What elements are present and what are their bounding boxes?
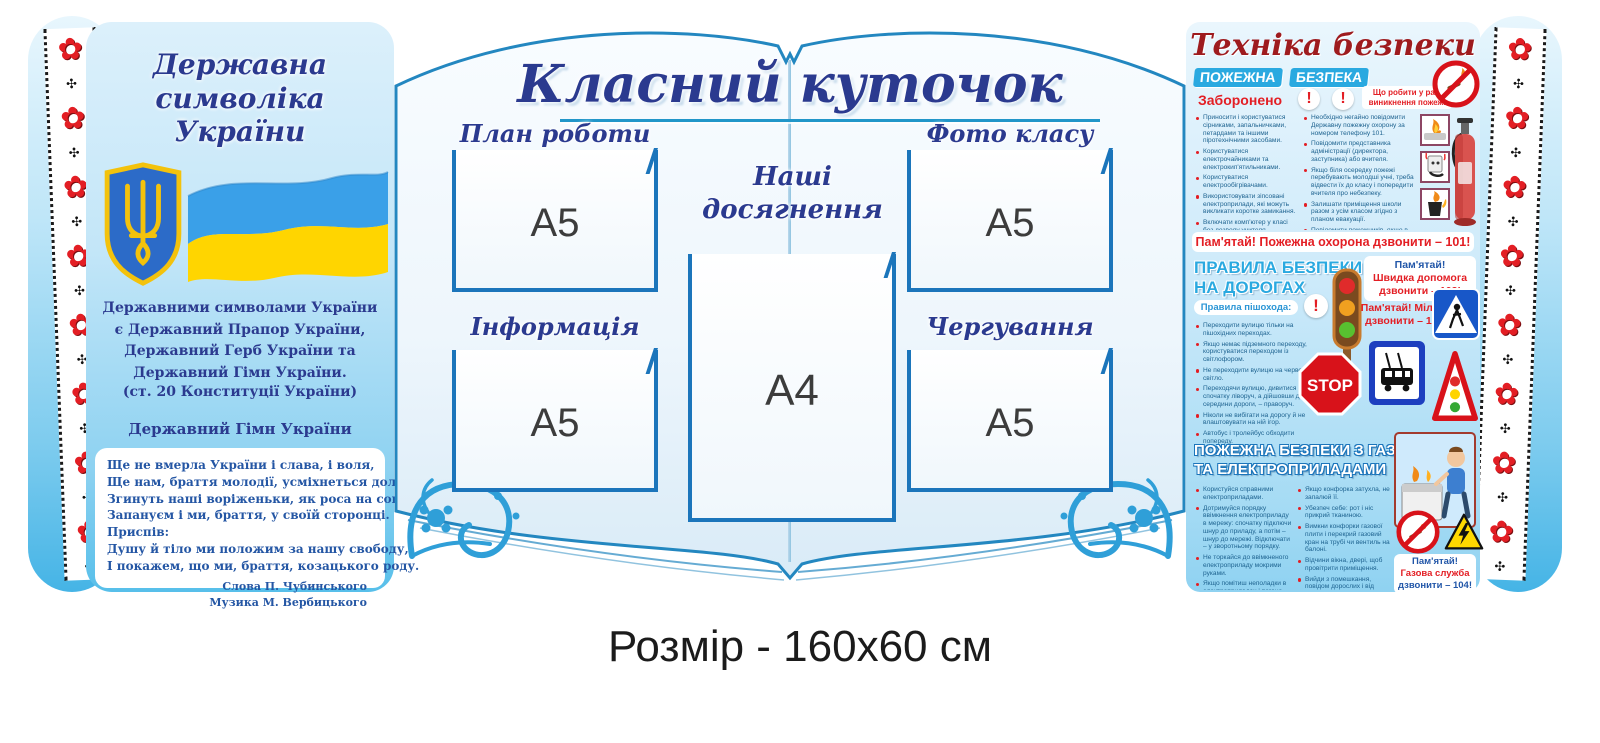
right-edge-panel: ✿✣✿✣✿✣✿✣✿✣✿✣✿✣✿✣ xyxy=(1474,16,1562,592)
heading-chip: ПОЖЕЖНА xyxy=(1193,68,1283,87)
list-item: Якщо конфорка затухла, не запалюй її. xyxy=(1298,486,1390,502)
symbols-row xyxy=(98,156,382,290)
gas-rules-right-list: Якщо конфорка затухла, не запалюй її. Уб… xyxy=(1298,486,1390,590)
list-item: Переходити вулицю тільки на пішохідних п… xyxy=(1196,322,1318,338)
label-line: Наші xyxy=(690,161,895,194)
gas-rules-left-list: Користуйся справними електроприладами. Д… xyxy=(1196,486,1294,590)
no-open-flame-sign-icon xyxy=(1432,60,1480,108)
coat-of-arms-trident-icon xyxy=(102,160,184,288)
pocket-size-label: A5 xyxy=(456,401,654,446)
reminder-line: Пам'ятай! xyxy=(1366,259,1474,272)
pocket-a5-duty: A5 xyxy=(907,350,1113,492)
reminder-line: Газова служба xyxy=(1395,568,1475,580)
anthem-line: Згинуть наші воріженьки, як роса на сонц… xyxy=(107,491,375,508)
reminder-line: дзвонити – 104! xyxy=(1395,580,1475,592)
exclamation-icon: ! xyxy=(1298,88,1320,110)
safety-panel: Техніка безпеки ПОЖЕЖНА БЕЗПЕКА Забороне… xyxy=(1186,22,1480,592)
list-item: Повідомити пожежників, якщо в цьому буде… xyxy=(1304,227,1416,230)
list-item: Користуватися електрочайниками та електр… xyxy=(1196,148,1298,171)
pocket-a5-photo: A5 xyxy=(907,150,1113,292)
list-item: Якщо біля осередку пожежі перебувають мо… xyxy=(1304,167,1416,198)
exclamation-icon: ! xyxy=(1332,88,1354,110)
anthem-line: І покажем, що ми, браття, козацького род… xyxy=(107,558,375,575)
trolleybus-stop-sign-icon xyxy=(1368,340,1426,406)
pocket-size-label: A5 xyxy=(911,401,1109,446)
pocket-a5-plan: A5 xyxy=(452,150,658,292)
fire-actions-list: Необхідно негайно повідомити Державну по… xyxy=(1304,114,1416,230)
credit-line: Музика М. Вербицького xyxy=(107,595,375,612)
anthem-credits: Слова П. Чубинського Музика М. Вербицько… xyxy=(107,579,375,612)
board-title: Класний куточок xyxy=(490,54,1090,115)
stop-sign-icon: STOP xyxy=(1298,352,1362,416)
list-item: Не торкайся до ввімкненого електроприлад… xyxy=(1196,554,1294,577)
pedestrian-crossing-sign-icon xyxy=(1432,288,1480,340)
anthem-heading: Державний Гімн України xyxy=(96,420,384,438)
ukraine-flag-icon xyxy=(184,166,390,284)
pocket-label-plan: План роботи xyxy=(450,119,660,148)
title-line: України xyxy=(86,115,394,149)
heading-chip: БЕЗПЕКА xyxy=(1289,68,1369,87)
pocket-label-achievements: Наші досягнення xyxy=(690,161,895,226)
burning-furniture-icon xyxy=(1420,114,1450,146)
fire-pictogram-column xyxy=(1420,114,1452,225)
pocket-label-info: Інформація xyxy=(450,312,660,341)
electric-hazard-sign-icon xyxy=(1444,512,1484,552)
class-corner-board: Класний куточок План роботи Фото класу Н… xyxy=(390,6,1190,598)
anthem-line: Приспів: xyxy=(107,524,375,541)
pocket-size-label: A5 xyxy=(456,201,654,246)
list-item: Вийди з помешкання, повідом дорослих і в… xyxy=(1298,576,1390,590)
anthem-line: Душу й тіло ми положим за нашу свободу, xyxy=(107,541,375,558)
list-item: Повідомити представника адміністрації (д… xyxy=(1304,140,1416,163)
anthem-text-box: Ще не вмерла України і слава, і воля, Ще… xyxy=(95,448,385,588)
anthem-line: Ще нам, браття молодії, усміхнеться доля… xyxy=(107,474,375,491)
list-item: Користуйся справними електроприладами. xyxy=(1196,486,1294,502)
label-line: досягнення xyxy=(690,194,895,227)
list-item: Відчини вікна, двері, щоб провітрити при… xyxy=(1298,557,1390,573)
list-item: Включати комп'ютер у класі без дозволу у… xyxy=(1196,219,1298,230)
traffic-light-warning-sign-icon xyxy=(1432,348,1478,424)
state-symbols-paragraph: Державними символами України є Державний… xyxy=(96,298,384,385)
reminder-line: Швидка допомога xyxy=(1366,272,1474,285)
title-line: символіка xyxy=(86,82,394,116)
state-symbols-panel: Державна символіка України Держа xyxy=(86,22,394,592)
list-item: Дотримуйся порядку ввімкнення електропри… xyxy=(1196,505,1294,552)
forbidden-label: Заборонено xyxy=(1198,92,1282,108)
classroom-board-mockup: ✿✣✿✣✿✣✿✣✿✣✿✣✿✣✿✣ ✿✣✿✣✿✣✿✣✿✣✿✣✿✣✿✣ Держав… xyxy=(0,0,1600,743)
list-item: Убезпеч себе: рот і ніс прикрий тканиною… xyxy=(1298,505,1390,521)
state-symbols-title: Державна символіка України xyxy=(86,48,394,149)
list-item: Якщо помітиш неполадки в електроприладах… xyxy=(1196,580,1294,590)
stop-sign-text: STOP xyxy=(1307,376,1353,395)
reminder-line: Пам'ятай! xyxy=(1395,556,1475,568)
embroidery-pattern-right-icon: ✿✣✿✣✿✣✿✣✿✣✿✣✿✣✿✣ xyxy=(1473,27,1546,581)
fire-safety-heading: ПОЖЕЖНА БЕЗПЕКА xyxy=(1194,68,1372,87)
pocket-a4-achievements: A4 xyxy=(688,254,896,522)
gas-reminder-104: Пам'ятай! Газова служба дзвонити – 104! xyxy=(1394,554,1476,594)
title-line: Державна xyxy=(86,48,394,82)
list-item: Необхідно негайно повідомити Державну по… xyxy=(1304,114,1416,137)
size-caption: Розмір - 160x60 см xyxy=(0,622,1600,672)
burning-bin-icon xyxy=(1420,188,1450,220)
list-item: Залишати приміщення школи разом з усім к… xyxy=(1304,201,1416,224)
pocket-size-label: A5 xyxy=(911,201,1109,246)
pedestrian-rules-label: Правила пішохода: xyxy=(1194,300,1298,315)
pocket-label-photo: Фото класу xyxy=(905,119,1115,148)
safety-title: Техніка безпеки xyxy=(1186,28,1480,63)
anthem-line: Ще не вмерла України і слава, і воля, xyxy=(107,457,375,474)
list-item: Використовувати зіпсовані електроприлади… xyxy=(1196,193,1298,216)
list-item: Приносити і користуватися сірниками, зап… xyxy=(1196,114,1298,145)
fire-forbidden-list: Приносити і користуватися сірниками, зап… xyxy=(1196,114,1298,230)
constitution-note: (ст. 20 Конституції України) xyxy=(96,384,384,400)
no-matches-sign-icon xyxy=(1396,510,1440,554)
pocket-a5-info: A5 xyxy=(452,350,658,492)
pocket-label-duty: Чергування xyxy=(905,312,1115,341)
pocket-size-label: A4 xyxy=(692,366,892,416)
overheated-socket-icon xyxy=(1420,151,1450,183)
list-item: Користуватися електрообігрівачами. xyxy=(1196,174,1298,190)
fire-extinguisher-icon xyxy=(1450,110,1480,228)
credit-line: Слова П. Чубинського xyxy=(107,579,375,596)
list-item: Вимкни конфорки газової плити і перекрий… xyxy=(1298,523,1390,554)
fire-reminder-101: Пам'ятай! Пожежна охорона дзвонити – 101… xyxy=(1192,232,1474,252)
anthem-line: Запануєм і ми, браття, у своїй сторонці. xyxy=(107,507,375,524)
